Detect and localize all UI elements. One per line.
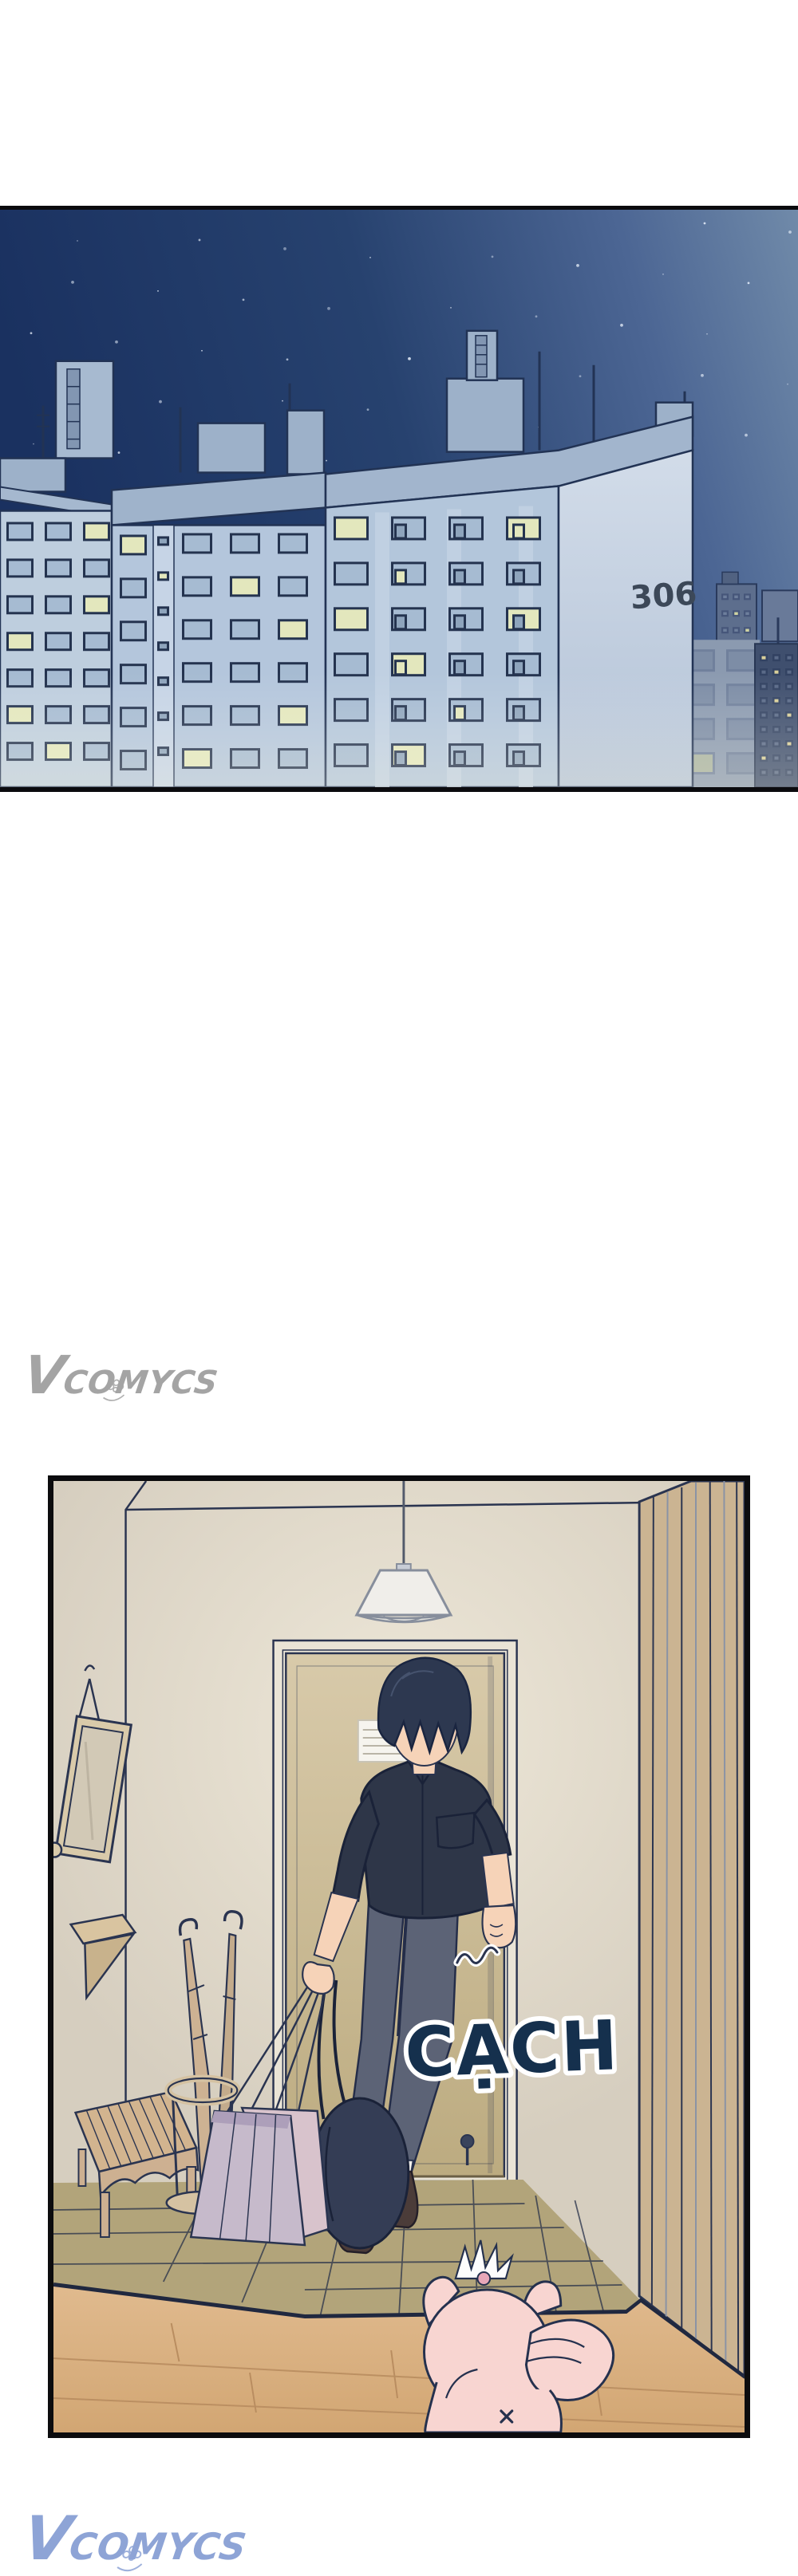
cityscape-illustration: 306 [0,210,798,787]
shirt [361,1759,498,1918]
right-forearm [482,1853,513,1908]
street-glow [0,672,798,787]
building-number-label: 306 [629,575,698,616]
entryway-illustration: CẠCH [53,1481,745,2432]
flower-doodle-icon [113,2543,150,2576]
watermark-bottom: VCOMYCS [20,2509,252,2570]
slat-partition [639,1481,745,2377]
entryway-panel: CẠCH [48,1475,750,2438]
flower-doodle-icon [100,1377,131,1405]
city-night-panel: 306 [0,206,798,792]
pig-body [425,2382,562,2432]
sfx-text: CẠCH [404,2007,621,2093]
watermark-middle: VCOMYCS [20,1349,223,1402]
